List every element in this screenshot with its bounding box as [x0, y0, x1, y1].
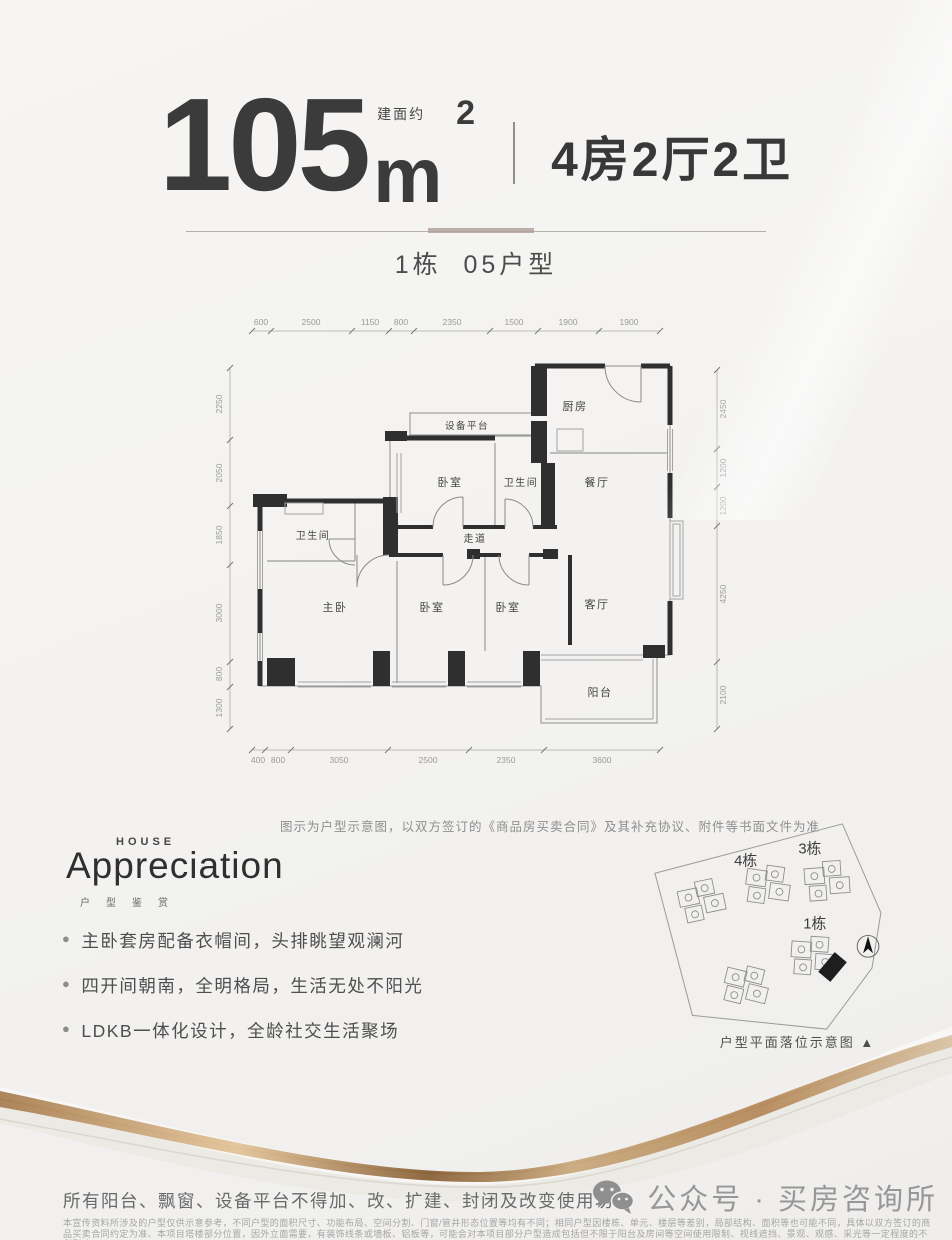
poster-page: 105 建面约 m 2 4房2厅2卫 1栋 05户型: [0, 0, 952, 1240]
room-master: 主卧: [323, 601, 348, 614]
feature-text: 四开间朝南，全明格局，生活无处不阳光: [81, 973, 423, 998]
dim-right-1: 1200: [718, 458, 728, 477]
feature-text: LDKB一体化设计，全龄社交生活聚场: [81, 1018, 399, 1043]
dim-top-2: 1150: [361, 317, 380, 327]
brand-logo: HOUSE Appreciation 户型鉴赏: [66, 836, 284, 909]
floor-plan-diagram: 厨房 设备平台 卧室 卫生间 餐厅 卫生间 走道 主卧 卧室 卧室 客厅 阳台 …: [205, 303, 765, 773]
site-buildings: [676, 860, 851, 1010]
plan-dims-top: 600 2500 1150 800 2350 1500 1900 1900: [254, 317, 639, 327]
building-unit-subtitle: 1栋 05户型: [0, 245, 952, 281]
label-building-1: 1栋: [803, 915, 826, 933]
site-boundary: [655, 824, 881, 1029]
room-bedroom-b1: 卧室: [420, 600, 445, 614]
wechat-account-name: 公众号 · 买房咨询所: [647, 1176, 938, 1218]
room-equipment-platform: 设备平台: [445, 420, 489, 432]
room-bedroom-top: 卧室: [438, 475, 463, 489]
dim-bottom-1: 800: [271, 755, 285, 765]
dim-top-3: 800: [394, 317, 408, 327]
label-building-4: 4栋: [734, 851, 757, 869]
room-bath-top: 卫生间: [504, 476, 539, 489]
dim-left-1: 2050: [214, 463, 224, 482]
layout-text: 4房2厅2卫: [551, 120, 793, 190]
dim-top-6: 1900: [559, 317, 578, 327]
legal-fine-print: 本宣传资料所涉及的户型仅供示意参考，不同户型的面积尺寸、功能布局、空间分割、门窗…: [63, 1218, 951, 1240]
dim-left-4: 800: [214, 667, 224, 681]
feature-item: ● 主卧套房配备衣帽间，头排眺望观澜河: [62, 928, 423, 953]
brand-name: Appreciation: [66, 845, 284, 887]
room-balcony: 阳台: [588, 685, 613, 699]
fine-print-line-1: 本宣传资料所涉及的户型仅供示意参考，不同户型的面积尺寸、功能布局、空间分割、门窗…: [63, 1218, 951, 1229]
dim-top-5: 1500: [505, 317, 524, 327]
plan-dims-bottom: 400 800 3050 2500 2350 3600: [251, 755, 612, 765]
plan-columns: [253, 366, 665, 686]
area-unit: m: [373, 147, 442, 203]
site-plan-caption: 户型平面落位示意图 ▲: [645, 1032, 950, 1051]
brand-chinese-subtitle: 户型鉴赏: [80, 894, 284, 909]
wechat-icon: [591, 1178, 635, 1216]
dim-right-2: 1200: [718, 496, 728, 515]
plan-dims-left: 2250 2050 1850 3000 800 1300: [214, 394, 224, 717]
site-plan-diagram: 4栋 3栋 1栋: [645, 820, 950, 1042]
room-living: 客厅: [585, 597, 610, 611]
dim-bottom-5: 3600: [593, 755, 612, 765]
hero-rule-accent: [428, 228, 534, 233]
dim-bottom-0: 400: [251, 755, 265, 765]
feature-item: ● 四开间朝南，全明格局，生活无处不阳光: [62, 973, 423, 998]
room-corridor: 走道: [464, 532, 487, 545]
fine-print-line-2: 品买卖合同约定为准、本项目塔楼部分位置，因外立面需要，有装饰线条或墙板、铝板等，…: [63, 1229, 951, 1240]
hero-divider: [513, 122, 515, 184]
area-superscript: 2: [456, 94, 475, 133]
dim-left-3: 3000: [214, 603, 224, 622]
plan-dims-right: 2450 1200 1200 4250 2100: [718, 399, 728, 704]
feature-item: ● LDKB一体化设计，全龄社交生活聚场: [62, 1018, 423, 1043]
wave-shadow-line: [0, 1057, 952, 1187]
bullet-icon: ●: [62, 1018, 71, 1040]
area-prefix: 建面约: [377, 104, 425, 124]
area-unit-group: 建面约 m 2: [373, 94, 473, 198]
dim-left-2: 1850: [214, 525, 224, 544]
site-unit-marker: [818, 952, 847, 982]
room-bath-left: 卫生间: [296, 529, 331, 542]
wechat-account-banner: 公众号 · 买房咨询所: [591, 1176, 938, 1218]
dim-top-0: 600: [254, 317, 268, 327]
dim-right-4: 2100: [718, 685, 728, 704]
room-bedroom-b2: 卧室: [496, 600, 521, 614]
room-kitchen: 厨房: [563, 400, 588, 413]
room-dining: 餐厅: [585, 475, 610, 489]
area-value: 105: [159, 92, 367, 198]
feature-list: ● 主卧套房配备衣帽间，头排眺望观澜河 ● 四开间朝南，全明格局，生活无处不阳光…: [62, 928, 423, 1063]
dim-left-0: 2250: [214, 394, 224, 413]
dim-top-4: 2350: [443, 317, 462, 327]
dim-bottom-3: 2500: [419, 755, 438, 765]
dim-right-0: 2450: [718, 399, 728, 418]
feature-text: 主卧套房配备衣帽间，头排眺望观澜河: [81, 928, 404, 953]
hero-header: 105 建面约 m 2 4房2厅2卫: [0, 92, 952, 198]
dim-left-5: 1300: [214, 698, 224, 717]
bullet-icon: ●: [62, 973, 71, 995]
label-building-3: 3栋: [798, 840, 821, 858]
dim-top-7: 1900: [620, 317, 639, 327]
dim-right-3: 4250: [718, 584, 728, 603]
dim-top-1: 2500: [302, 317, 321, 327]
bullet-icon: ●: [62, 928, 71, 950]
usage-warning-text: 所有阳台、飘窗、设备平台不得加、改、扩建、封闭及改变使用功能: [63, 1188, 633, 1213]
plan-windows: [258, 429, 684, 719]
dim-bottom-4: 2350: [497, 755, 516, 765]
dim-bottom-2: 3050: [330, 755, 349, 765]
